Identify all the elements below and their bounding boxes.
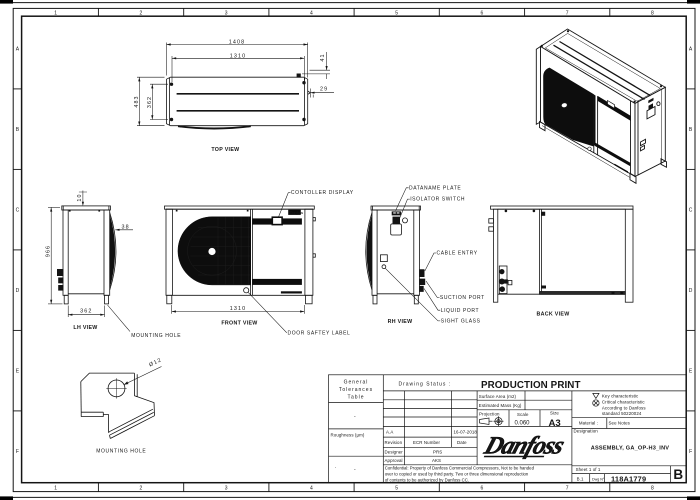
svg-text:Revision: Revision [385,440,403,445]
svg-text:8: 8 [651,10,654,16]
svg-text:118A1779: 118A1779 [611,474,646,483]
svg-text:1310: 1310 [230,306,246,312]
svg-text:2: 2 [140,485,143,491]
svg-text:483: 483 [134,95,140,107]
svg-text:Danfoss: Danfoss [288,210,303,215]
svg-text:LH VIEW: LH VIEW [73,325,97,331]
svg-text:Dwg N°: Dwg N° [592,477,605,481]
svg-text:B: B [673,467,683,482]
svg-text:Projection: Projection [479,411,500,416]
svg-text:Danfoss: Danfoss [480,431,568,459]
svg-text:PRODUCTION PRINT: PRODUCTION PRINT [481,380,581,391]
svg-text:2: 2 [140,10,143,16]
svg-text:Scale: Scale [517,412,529,417]
svg-text:0.060: 0.060 [515,421,531,427]
svg-text:41: 41 [320,53,326,61]
svg-text:1310: 1310 [230,54,246,60]
svg-text:1: 1 [54,10,57,16]
svg-text:3: 3 [225,10,228,16]
svg-text:LIQUID PORT: LIQUID PORT [441,308,479,314]
svg-text:Approval: Approval [385,458,403,463]
svg-text:1: 1 [54,485,57,491]
svg-text:PRS: PRS [433,449,442,454]
svg-text:of contents to be authorized b: of contents to be authorized by Danfoss … [385,477,469,482]
svg-text:BACK VIEW: BACK VIEW [536,311,569,317]
svg-text:Size: Size [550,411,559,416]
svg-text:362: 362 [147,96,153,108]
svg-text:D: D [16,288,20,294]
svg-text:Tolerances: Tolerances [339,387,373,393]
svg-text:A.A: A.A [386,430,393,435]
svg-text:General: General [344,380,369,386]
svg-text:29: 29 [320,87,328,93]
svg-text:8: 8 [651,485,654,491]
svg-text:C: C [16,208,20,214]
svg-text:RH VIEW: RH VIEW [388,319,413,325]
svg-text:Drawing Status :: Drawing Status : [399,382,452,388]
svg-text:Date: Date [457,440,467,445]
svg-text:SIGHT GLASS: SIGHT GLASS [441,319,481,325]
svg-text:C: C [689,208,693,214]
svg-text:Table: Table [348,394,365,400]
svg-text:CABLE ENTRY: CABLE ENTRY [437,251,478,257]
svg-text:10: 10 [77,193,83,201]
svg-text:966: 966 [46,245,52,257]
svg-text:7: 7 [566,485,569,491]
svg-text:Key characteristic: Key characteristic [602,393,639,398]
svg-text:ASSEMBLY, GA_OP-H3_INV: ASSEMBLY, GA_OP-H3_INV [591,446,670,452]
svg-text:ISOLATOR SWITCH: ISOLATOR SWITCH [410,197,465,203]
svg-text:AKS: AKS [432,458,441,463]
svg-text:F: F [689,449,692,455]
svg-text:D: D [689,288,693,294]
svg-text:MOUNTING HOLE: MOUNTING HOLE [131,333,181,339]
svg-text:ECR Number: ECR Number [413,440,441,445]
svg-text:TOP VIEW: TOP VIEW [211,147,239,153]
svg-text:5: 5 [395,10,398,16]
svg-text:F: F [16,449,19,455]
svg-text:DOOR SAFTEY LABEL: DOOR SAFTEY LABEL [288,331,351,337]
svg-text:4: 4 [310,485,313,491]
svg-text:B.1: B.1 [577,477,584,482]
svg-text:MOUNTING HOLE: MOUNTING HOLE [96,448,146,454]
svg-text:362: 362 [80,309,92,315]
svg-text:7: 7 [566,10,569,16]
svg-text:Material :: Material : [579,420,598,425]
svg-text:According to Danfoss: According to Danfoss [602,405,646,410]
svg-text:Estimated Mass (Kg): Estimated Mass (Kg) [479,403,522,408]
svg-text:CONTOLLER DISPLAY: CONTOLLER DISPLAY [291,190,354,196]
svg-text:.: . [335,464,337,470]
svg-text:Sheet 1 of 1: Sheet 1 of 1 [576,467,601,472]
svg-text:Critical characteristic: Critical characteristic [602,400,646,405]
svg-text:Surface Area (m2): Surface Area (m2) [479,394,517,399]
svg-text:Designation: Designation [574,429,599,434]
svg-text:38: 38 [122,225,130,231]
svg-text:over to copied or used by thir: over to copied or used by third party. T… [385,471,529,476]
svg-text:FRONT VIEW: FRONT VIEW [221,321,257,327]
svg-text:4: 4 [310,10,313,16]
svg-text:1408: 1408 [229,40,245,46]
svg-text:Designer: Designer [385,449,404,454]
svg-text:DATANAME PLATE: DATANAME PLATE [409,185,461,191]
svg-text:5: 5 [395,485,398,491]
svg-text:Roughness (µm): Roughness (µm) [331,432,365,437]
svg-text:A3: A3 [549,418,561,429]
svg-text:-: - [354,413,357,419]
svg-text:SUCTION PORT: SUCTION PORT [440,295,485,301]
svg-text:Confidential: Property of Danf: Confidential: Property of Danfoss Commer… [385,465,535,470]
svg-text:See Notes: See Notes [609,420,631,425]
svg-text:6: 6 [481,485,484,491]
svg-text:standard 50220024: standard 50220024 [602,411,642,416]
svg-text:16-07-2018: 16-07-2018 [454,430,478,435]
svg-text:-: - [354,467,357,473]
svg-text:6: 6 [481,10,484,16]
svg-text:3: 3 [225,485,228,491]
